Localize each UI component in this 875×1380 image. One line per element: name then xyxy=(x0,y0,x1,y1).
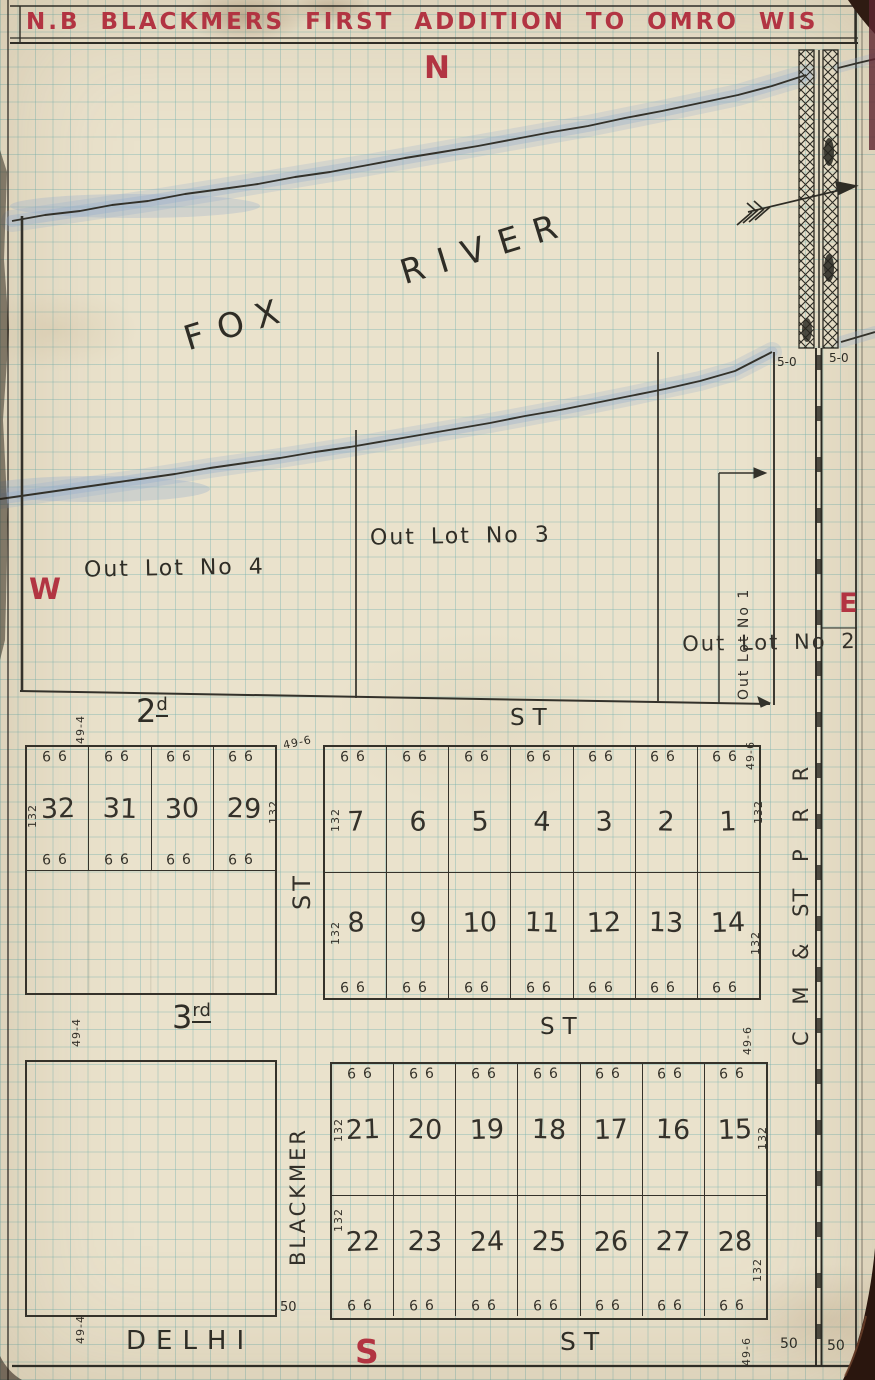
lot-frontage: 66 xyxy=(228,851,260,868)
lot-cell: 66 6 xyxy=(386,747,448,872)
block-east-upper: 66 7 66 6 66 5 66 4 66 3 66 2 66 1 xyxy=(323,745,761,1000)
lot-depth-dim: 132 xyxy=(332,1208,345,1232)
lot-frontage: 66 xyxy=(339,748,371,765)
lot-number: 23 xyxy=(407,1226,442,1258)
lot-frontage: 66 xyxy=(104,851,136,868)
lot-frontage: 66 xyxy=(526,748,558,765)
block-east-lower: 66 21 66 20 66 19 66 18 66 17 66 16 66 1… xyxy=(330,1062,768,1320)
lot-number: 31 xyxy=(102,792,137,824)
lot-frontage: 66 xyxy=(166,748,198,765)
delhi-street-label: DELHI xyxy=(126,1326,254,1356)
lot-cell: 66 16 xyxy=(642,1064,704,1195)
lot-number: 12 xyxy=(586,907,621,939)
railroad-track xyxy=(816,348,857,1366)
lot-number: 7 xyxy=(346,806,364,838)
lot-depth-dim: 132 xyxy=(267,800,280,824)
third-street-number: 3 xyxy=(172,998,192,1036)
lot-cell: 66 31 66 xyxy=(88,747,150,870)
erased-lots-area xyxy=(27,871,275,993)
lot-number: 5 xyxy=(471,806,489,838)
lot-number: 24 xyxy=(469,1226,504,1258)
lot-cell: 12 66 xyxy=(573,873,635,998)
lot-frontage: 66 xyxy=(409,1065,441,1082)
out-lot-4-label: Out Lot No 4 xyxy=(84,554,265,582)
lot-number: 21 xyxy=(345,1113,380,1145)
third-street-label: 3rd xyxy=(172,998,211,1036)
lot-depth-dim: 132 xyxy=(749,931,762,955)
out-lot-1-label: Out Lot No 1 xyxy=(736,588,752,700)
lot-frontage: 66 xyxy=(588,979,620,996)
lot-frontage: 66 xyxy=(471,1065,503,1082)
lot-cell: 9 66 xyxy=(386,873,448,998)
second-street-label: 2d xyxy=(136,692,168,730)
lot-frontage: 66 xyxy=(471,1297,503,1314)
street-width-dim: 49-6 xyxy=(740,1337,753,1366)
lot-number: 32 xyxy=(40,792,75,824)
lot-frontage: 66 xyxy=(346,1065,378,1082)
lot-frontage: 66 xyxy=(650,748,682,765)
compass-north: N xyxy=(424,50,450,86)
lot-depth-dim: 132 xyxy=(751,1258,764,1282)
lot-frontage: 66 xyxy=(588,748,620,765)
lot-cell: 66 17 xyxy=(580,1064,642,1195)
lot-frontage: 66 xyxy=(166,851,198,868)
lot-number: 28 xyxy=(718,1226,753,1258)
delhi-street-st: ST xyxy=(560,1327,607,1356)
lot-depth-dim: 132 xyxy=(752,800,765,824)
street-width-dim: 49-4 xyxy=(74,1315,87,1344)
lot-row-32-29: 66 32 66 66 31 66 66 30 66 66 29 66 xyxy=(27,747,275,871)
lot-frontage: 66 xyxy=(346,1297,378,1314)
lot-frontage: 66 xyxy=(712,979,744,996)
lot-frontage: 66 xyxy=(339,979,371,996)
lot-depth-dim: 132 xyxy=(332,1118,345,1142)
street-width-dim: 49-6 xyxy=(741,1026,754,1055)
lot-frontage: 66 xyxy=(41,851,73,868)
lot-frontage: 66 xyxy=(657,1065,689,1082)
blackmer-street-st: ST xyxy=(288,872,316,910)
lot-frontage: 66 xyxy=(228,748,260,765)
row-width-dim: 5-0 xyxy=(829,351,849,365)
lot-frontage: 66 xyxy=(657,1297,689,1314)
lot-frontage: 66 xyxy=(464,979,496,996)
lot-frontage: 66 xyxy=(533,1065,565,1082)
lot-cell: 66 18 xyxy=(517,1064,579,1195)
out-lot-3-label: Out Lot No 3 xyxy=(370,522,551,550)
street-width-dim: 49-6 xyxy=(744,741,757,770)
lot-depth-dim: 132 xyxy=(756,1126,769,1150)
blackmer-street-name: BLACKMER xyxy=(286,1127,310,1266)
lot-depth-dim: 132 xyxy=(329,808,342,832)
lot-frontage: 66 xyxy=(650,979,682,996)
lot-row-8-14: 8 66 9 66 10 66 11 66 12 66 13 66 14 66 xyxy=(325,873,759,998)
lot-row-7-1: 66 7 66 6 66 5 66 4 66 3 66 2 66 1 xyxy=(325,747,759,873)
lot-number: 2 xyxy=(657,806,675,838)
lot-cell: 66 4 xyxy=(510,747,572,872)
block-west-lower xyxy=(25,1060,277,1317)
third-street-ordinal: rd xyxy=(192,1000,211,1023)
lot-cell: 66 2 xyxy=(635,747,697,872)
lot-frontage: 66 xyxy=(526,979,558,996)
lot-cell: 66 29 66 xyxy=(213,747,275,870)
lot-frontage: 66 xyxy=(464,748,496,765)
second-street-ordinal: d xyxy=(156,694,167,717)
lot-frontage: 66 xyxy=(719,1065,751,1082)
second-street-number: 2 xyxy=(136,692,156,730)
lot-frontage: 66 xyxy=(402,979,434,996)
lot-number: 19 xyxy=(469,1113,504,1145)
lot-frontage: 66 xyxy=(402,748,434,765)
lot-number: 16 xyxy=(656,1113,691,1145)
lot-frontage: 66 xyxy=(409,1297,441,1314)
lot-number: 6 xyxy=(409,806,427,838)
lot-cell: 66 20 xyxy=(393,1064,455,1195)
lot-cell: 10 66 xyxy=(448,873,510,998)
lot-frontage: 66 xyxy=(104,748,136,765)
lot-number: 11 xyxy=(524,907,559,939)
lot-number: 22 xyxy=(345,1226,380,1258)
row-width-dim: 5-0 xyxy=(777,355,797,369)
lot-number: 17 xyxy=(593,1113,628,1145)
lot-cell: 28 66 xyxy=(704,1196,766,1316)
lot-number: 14 xyxy=(711,907,746,939)
lot-number: 27 xyxy=(656,1226,691,1258)
lot-cell: 66 3 xyxy=(573,747,635,872)
compass-west: W xyxy=(29,572,61,606)
lot-frontage: 66 xyxy=(595,1065,627,1082)
compass-south: S xyxy=(355,1332,379,1371)
compass-east: E xyxy=(839,588,857,619)
map-title: N.B BLACKMERS FIRST ADDITION TO OMRO WIS xyxy=(26,9,818,35)
lot-depth-dim: 132 xyxy=(26,804,39,828)
lot-cell: 13 66 xyxy=(635,873,697,998)
lot-cell: 24 66 xyxy=(455,1196,517,1316)
lot-number: 26 xyxy=(593,1226,628,1258)
lot-cell: 66 19 xyxy=(455,1064,517,1195)
lot-number: 30 xyxy=(164,792,199,824)
street-width-dim: 49-4 xyxy=(74,715,87,744)
plat-map-page: N.B BLACKMERS FIRST ADDITION TO OMRO WIS… xyxy=(0,0,875,1380)
lot-cell: 23 66 xyxy=(393,1196,455,1316)
row-width-dim: 50 xyxy=(280,1300,297,1315)
lot-number: 18 xyxy=(531,1113,566,1145)
lot-cell: 66 30 66 xyxy=(151,747,213,870)
lot-cell: 11 66 xyxy=(510,873,572,998)
lot-number: 20 xyxy=(407,1113,442,1145)
row-width-dim: 50 xyxy=(780,1336,798,1352)
lot-cell: 25 66 xyxy=(517,1196,579,1316)
lot-cell: 27 66 xyxy=(642,1196,704,1316)
lot-frontage: 66 xyxy=(712,748,744,765)
street-width-dim: 49-4 xyxy=(70,1018,83,1047)
third-street-st: ST xyxy=(540,1014,585,1040)
row-width-dim: 50 xyxy=(827,1338,845,1354)
lot-number: 1 xyxy=(719,806,737,838)
lot-number: 9 xyxy=(409,907,427,939)
lot-number: 4 xyxy=(533,806,551,838)
lot-number: 10 xyxy=(462,907,497,939)
lot-depth-dim: 132 xyxy=(329,921,342,945)
block-west-upper: 66 32 66 66 31 66 66 30 66 66 29 66 xyxy=(25,745,277,995)
lot-number: 29 xyxy=(227,792,262,824)
lot-number: 8 xyxy=(346,907,364,939)
railroad-label: C M & ST P R R xyxy=(789,765,813,1046)
lot-number: 25 xyxy=(531,1226,566,1258)
lot-row-22-28: 22 66 23 66 24 66 25 66 26 66 27 66 28 6… xyxy=(332,1196,766,1316)
lot-frontage: 66 xyxy=(41,748,73,765)
lot-cell: 26 66 xyxy=(580,1196,642,1316)
lot-row-21-15: 66 21 66 20 66 19 66 18 66 17 66 16 66 1… xyxy=(332,1064,766,1196)
lot-frontage: 66 xyxy=(719,1297,751,1314)
lot-number: 3 xyxy=(595,806,613,838)
lot-cell: 66 5 xyxy=(448,747,510,872)
lot-frontage: 66 xyxy=(595,1297,627,1314)
lot-number: 13 xyxy=(649,907,684,939)
lot-number: 15 xyxy=(718,1113,753,1145)
second-street-st: ST xyxy=(510,705,555,731)
lot-frontage: 66 xyxy=(533,1297,565,1314)
out-lot-2-label: Out Lot No 2 xyxy=(682,629,857,656)
